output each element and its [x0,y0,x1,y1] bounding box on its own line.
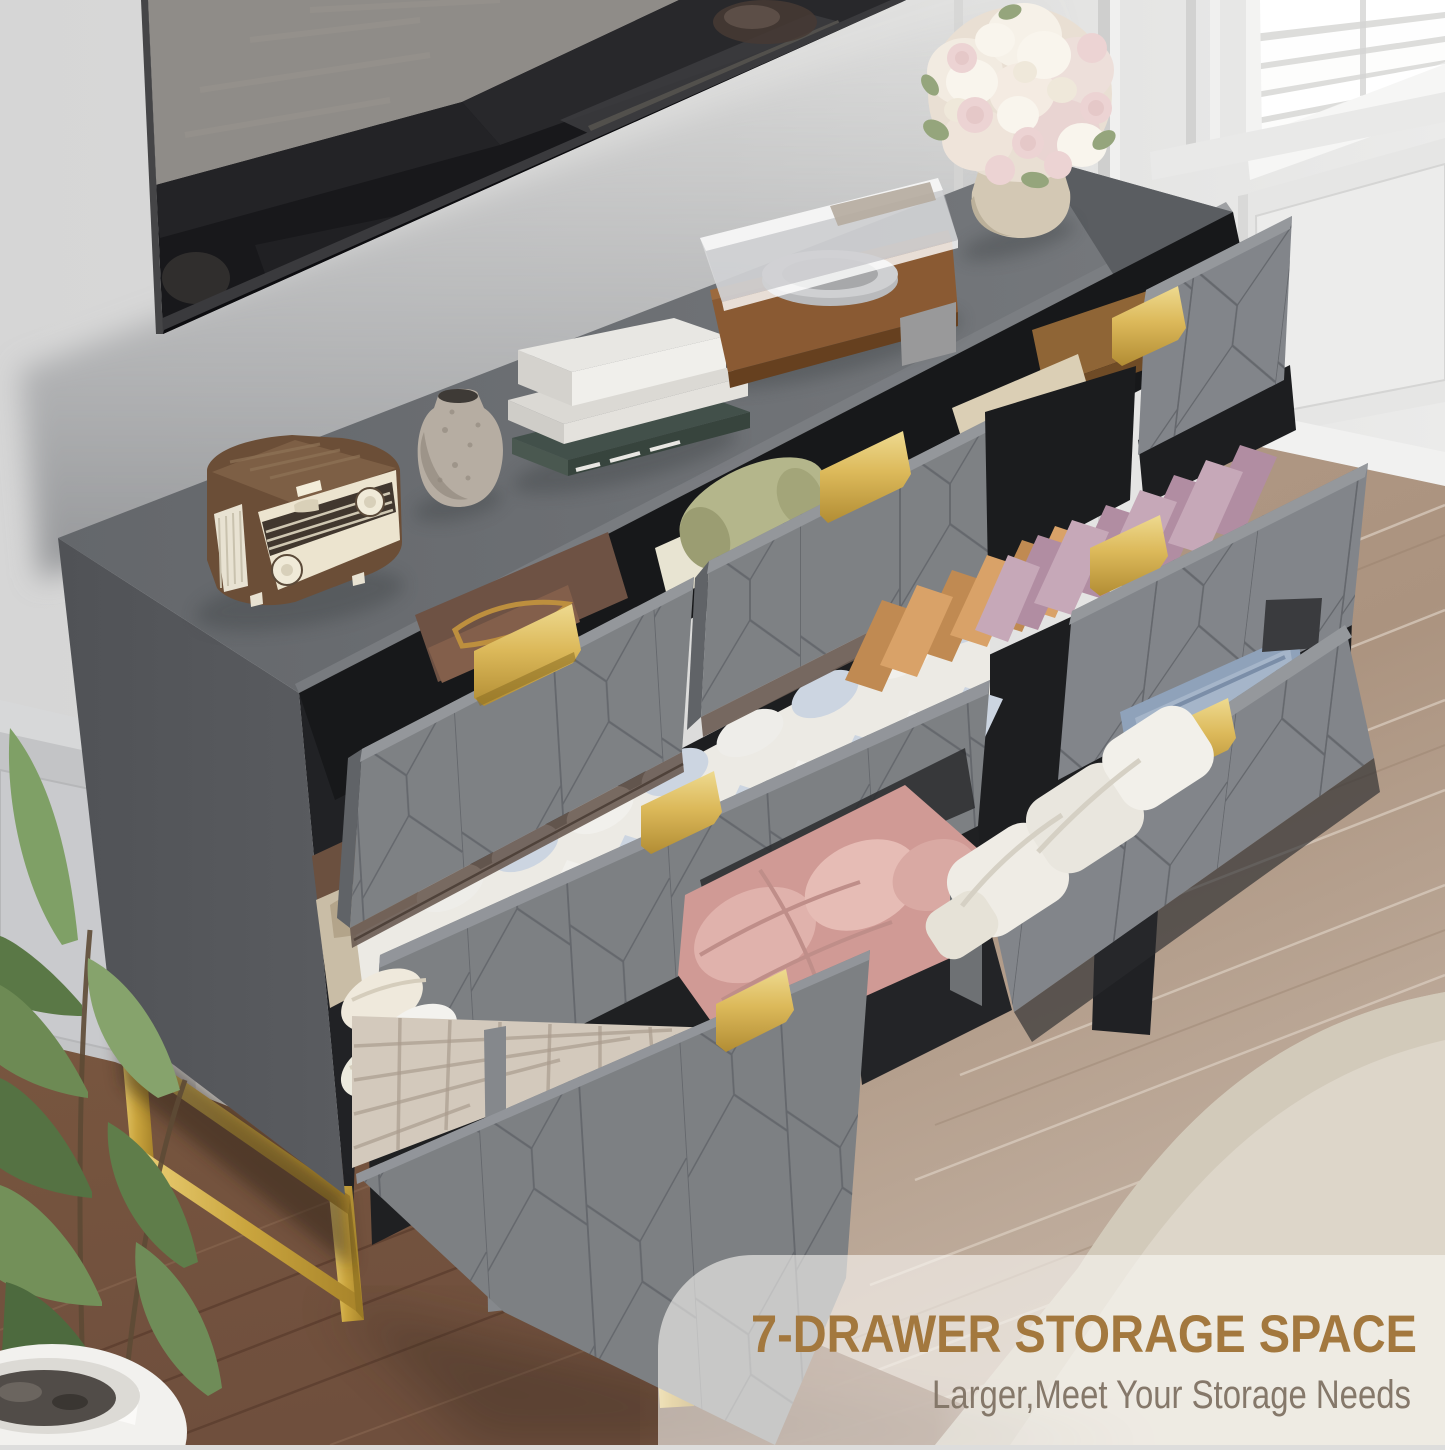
svg-text:7-DRAWER STORAGE SPACE: 7-DRAWER STORAGE SPACE [751,1305,1417,1364]
svg-text:Larger,Meet Your Storage Needs: Larger,Meet Your Storage Needs [932,1373,1411,1417]
